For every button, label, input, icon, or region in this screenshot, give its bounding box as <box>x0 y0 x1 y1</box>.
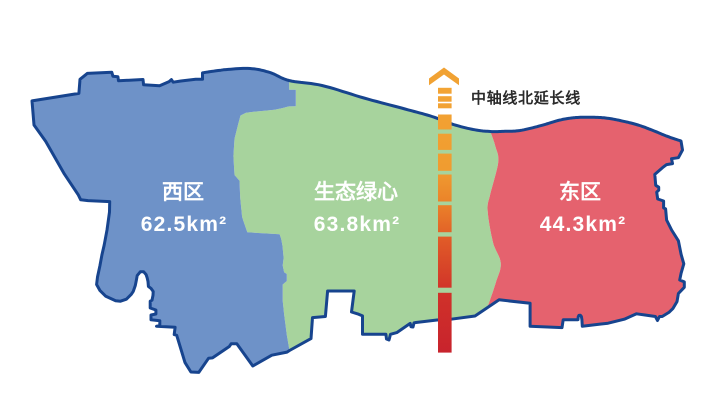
svg-text:中轴线北延长线: 中轴线北延长线 <box>471 89 581 107</box>
svg-text:63.8km²: 63.8km² <box>314 213 401 236</box>
svg-text:东区: 东区 <box>559 180 601 204</box>
svg-text:44.3km²: 44.3km² <box>540 213 627 236</box>
svg-text:西区: 西区 <box>162 181 204 204</box>
svg-text:62.5km²: 62.5km² <box>141 213 228 236</box>
svg-text:生态绿心: 生态绿心 <box>314 180 398 204</box>
